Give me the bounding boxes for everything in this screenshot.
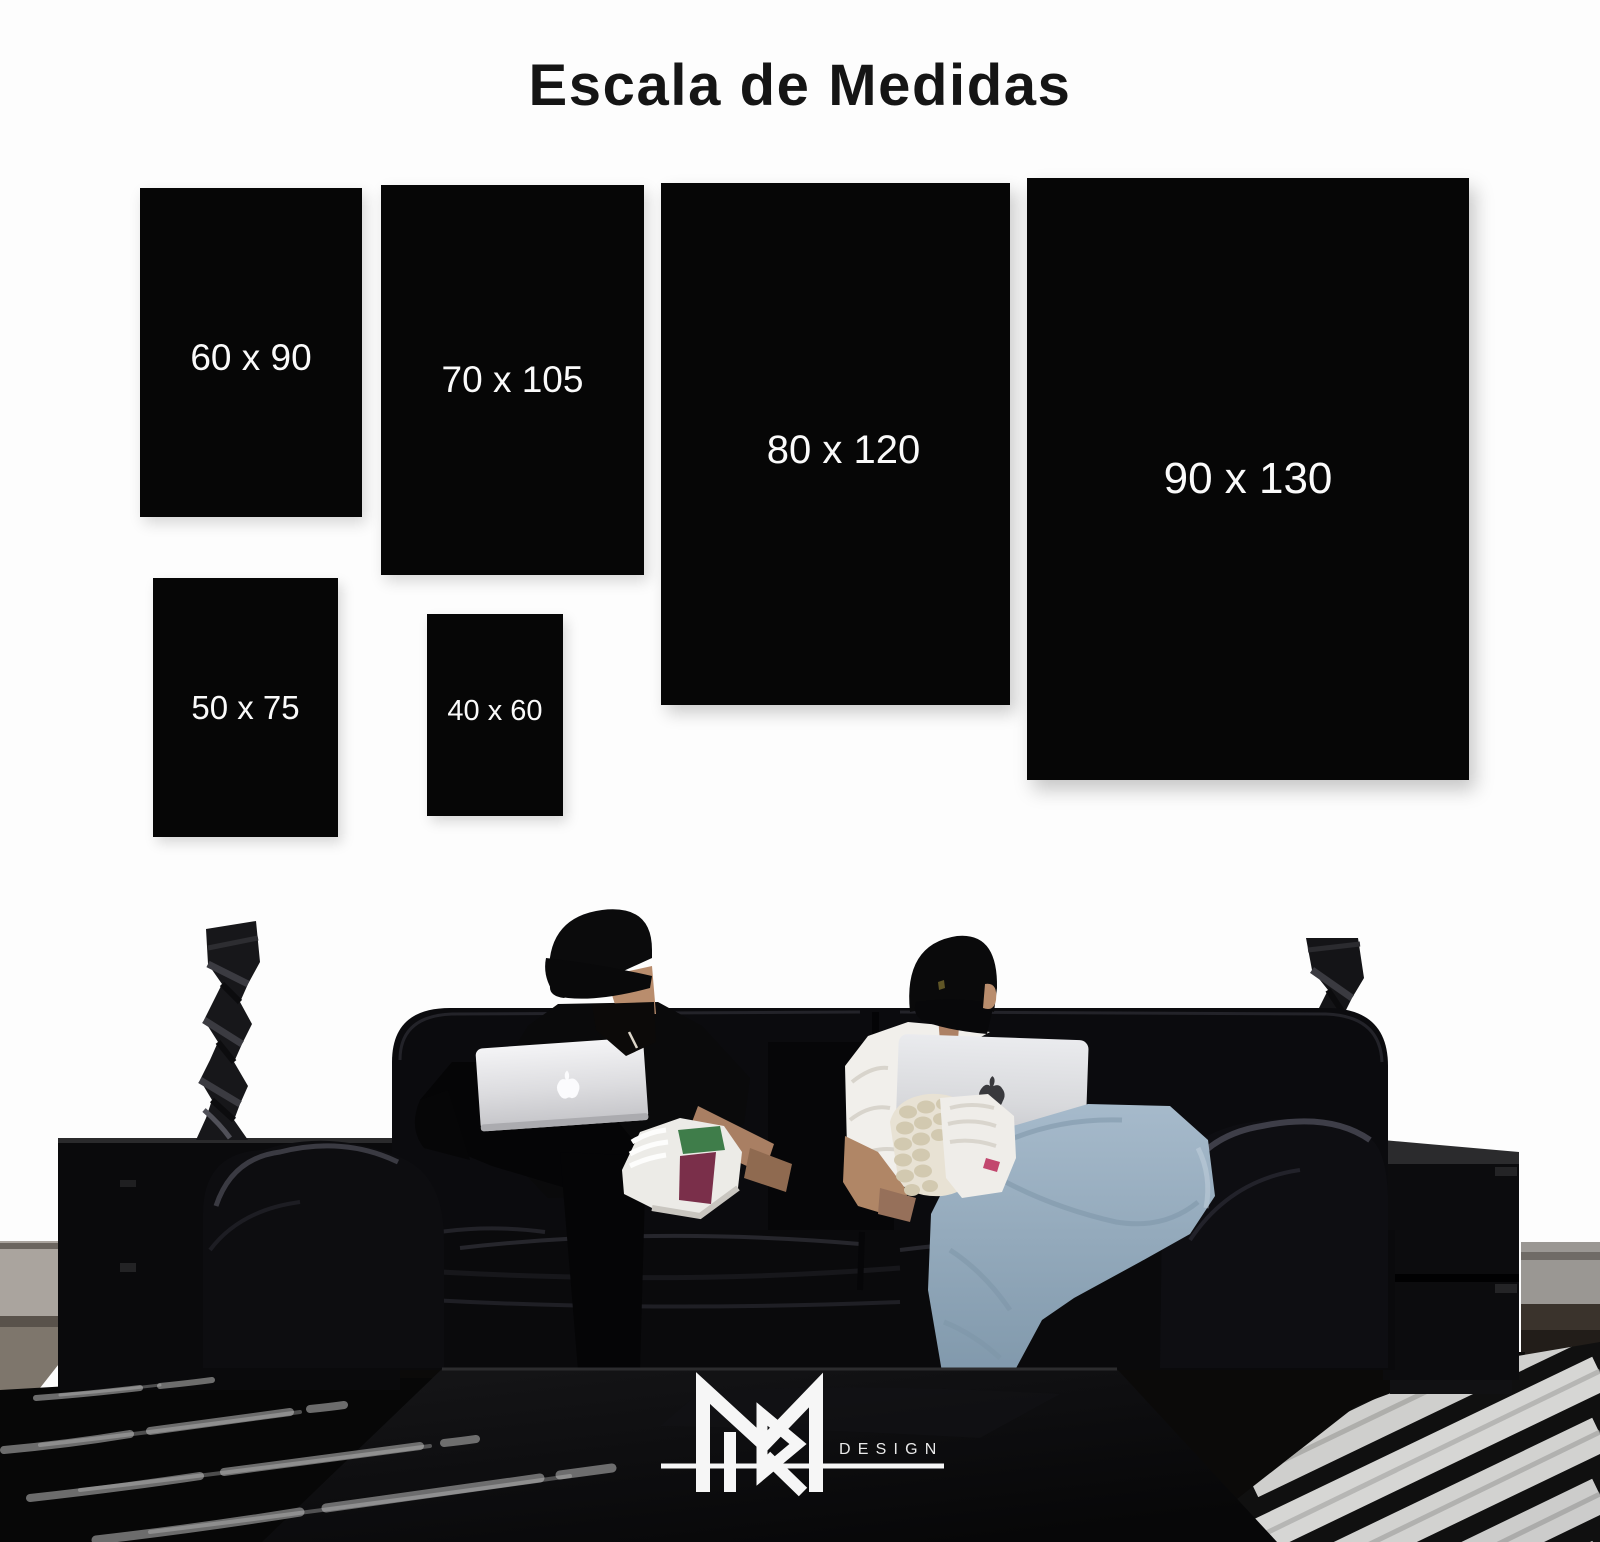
svg-text:DESIGN: DESIGN	[839, 1441, 944, 1458]
